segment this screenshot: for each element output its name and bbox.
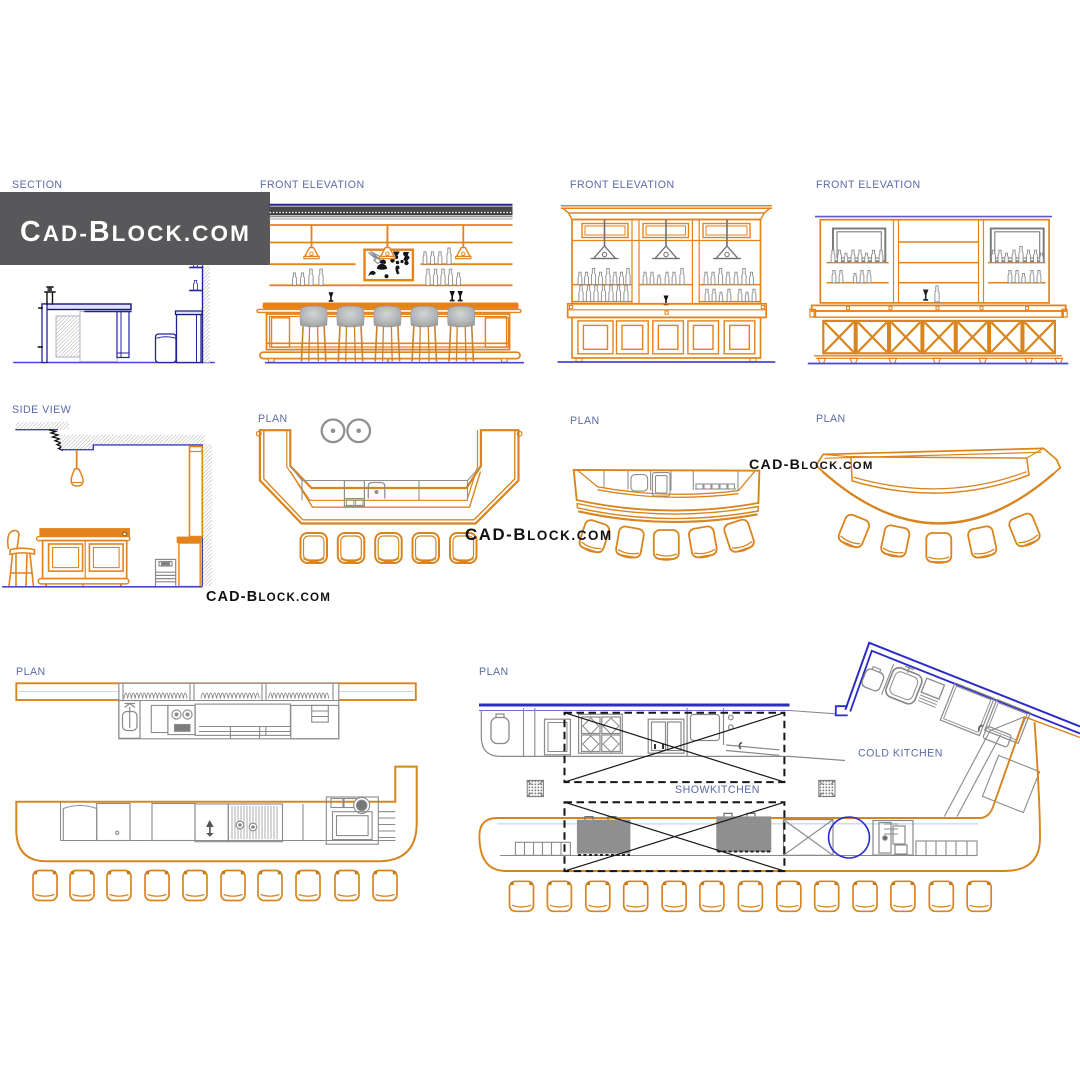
svg-text:PLAN: PLAN — [16, 666, 46, 678]
svg-text:FRONT ELEVATION: FRONT ELEVATION — [570, 179, 675, 191]
svg-text:CAD-BLOCK.COM: CAD-BLOCK.COM — [749, 457, 874, 473]
svg-text:COLD KITCHEN: COLD KITCHEN — [858, 748, 943, 760]
svg-text:PLAN: PLAN — [816, 413, 846, 425]
svg-text:SECTION: SECTION — [12, 179, 63, 191]
svg-text:CAD-BLOCK.COM: CAD-BLOCK.COM — [206, 589, 331, 605]
svg-text:CAD-BLOCK.COM: CAD-BLOCK.COM — [465, 525, 613, 544]
svg-text:CAD-BLOCK.COM: CAD-BLOCK.COM — [20, 216, 251, 248]
svg-text:SIDE VIEW: SIDE VIEW — [12, 404, 71, 416]
svg-text:PLAN: PLAN — [258, 413, 288, 425]
svg-text:SHOWKITCHEN: SHOWKITCHEN — [675, 784, 760, 796]
svg-text:FRONT ELEVATION: FRONT ELEVATION — [260, 179, 365, 191]
svg-text:FRONT ELEVATION: FRONT ELEVATION — [816, 179, 921, 191]
svg-text:PLAN: PLAN — [570, 415, 600, 427]
svg-text:PLAN: PLAN — [479, 666, 509, 678]
